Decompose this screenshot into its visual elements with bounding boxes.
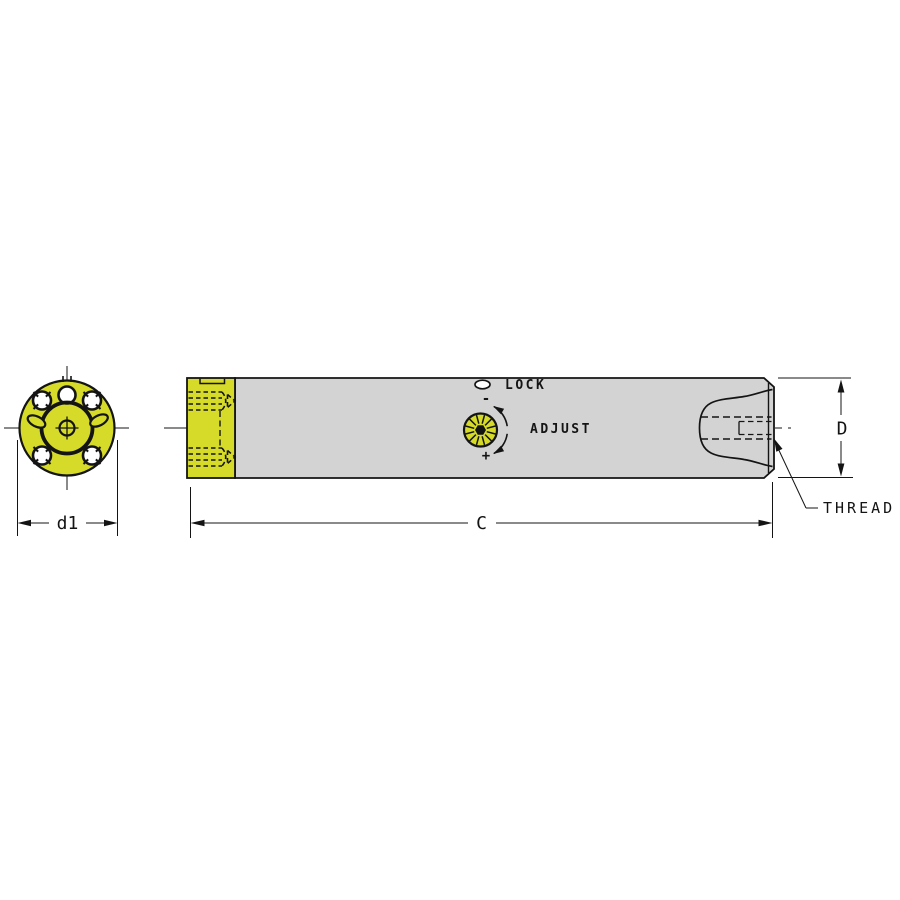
adjust-wheel — [464, 414, 497, 447]
clamp-screw-hole — [33, 447, 51, 465]
side-key-tab-right — [115, 431, 120, 439]
plus-label: + — [482, 448, 490, 464]
adjust-label: ADJUST — [530, 422, 592, 437]
clamp-screw-hole — [83, 447, 101, 465]
d-dimension-label: D — [837, 419, 848, 440]
minus-label: - — [482, 391, 490, 407]
lock-hole — [475, 380, 490, 389]
thread-label: THREAD — [823, 499, 895, 517]
technical-drawing-page: d1 LOCK — [0, 0, 900, 900]
c-dimension-label: C — [476, 513, 487, 534]
lock-label: LOCK — [505, 378, 546, 393]
c-dimension: C — [191, 482, 773, 538]
clamp-screw-hole — [83, 392, 101, 410]
boring-bar-technical-drawing: d1 LOCK — [0, 0, 900, 900]
side-view: LOCK - — [164, 378, 895, 538]
clamp-screw-hole — [33, 392, 51, 410]
end-view: d1 — [4, 366, 129, 536]
d1-dimension-label: d1 — [57, 513, 79, 534]
tool-body — [235, 378, 774, 478]
